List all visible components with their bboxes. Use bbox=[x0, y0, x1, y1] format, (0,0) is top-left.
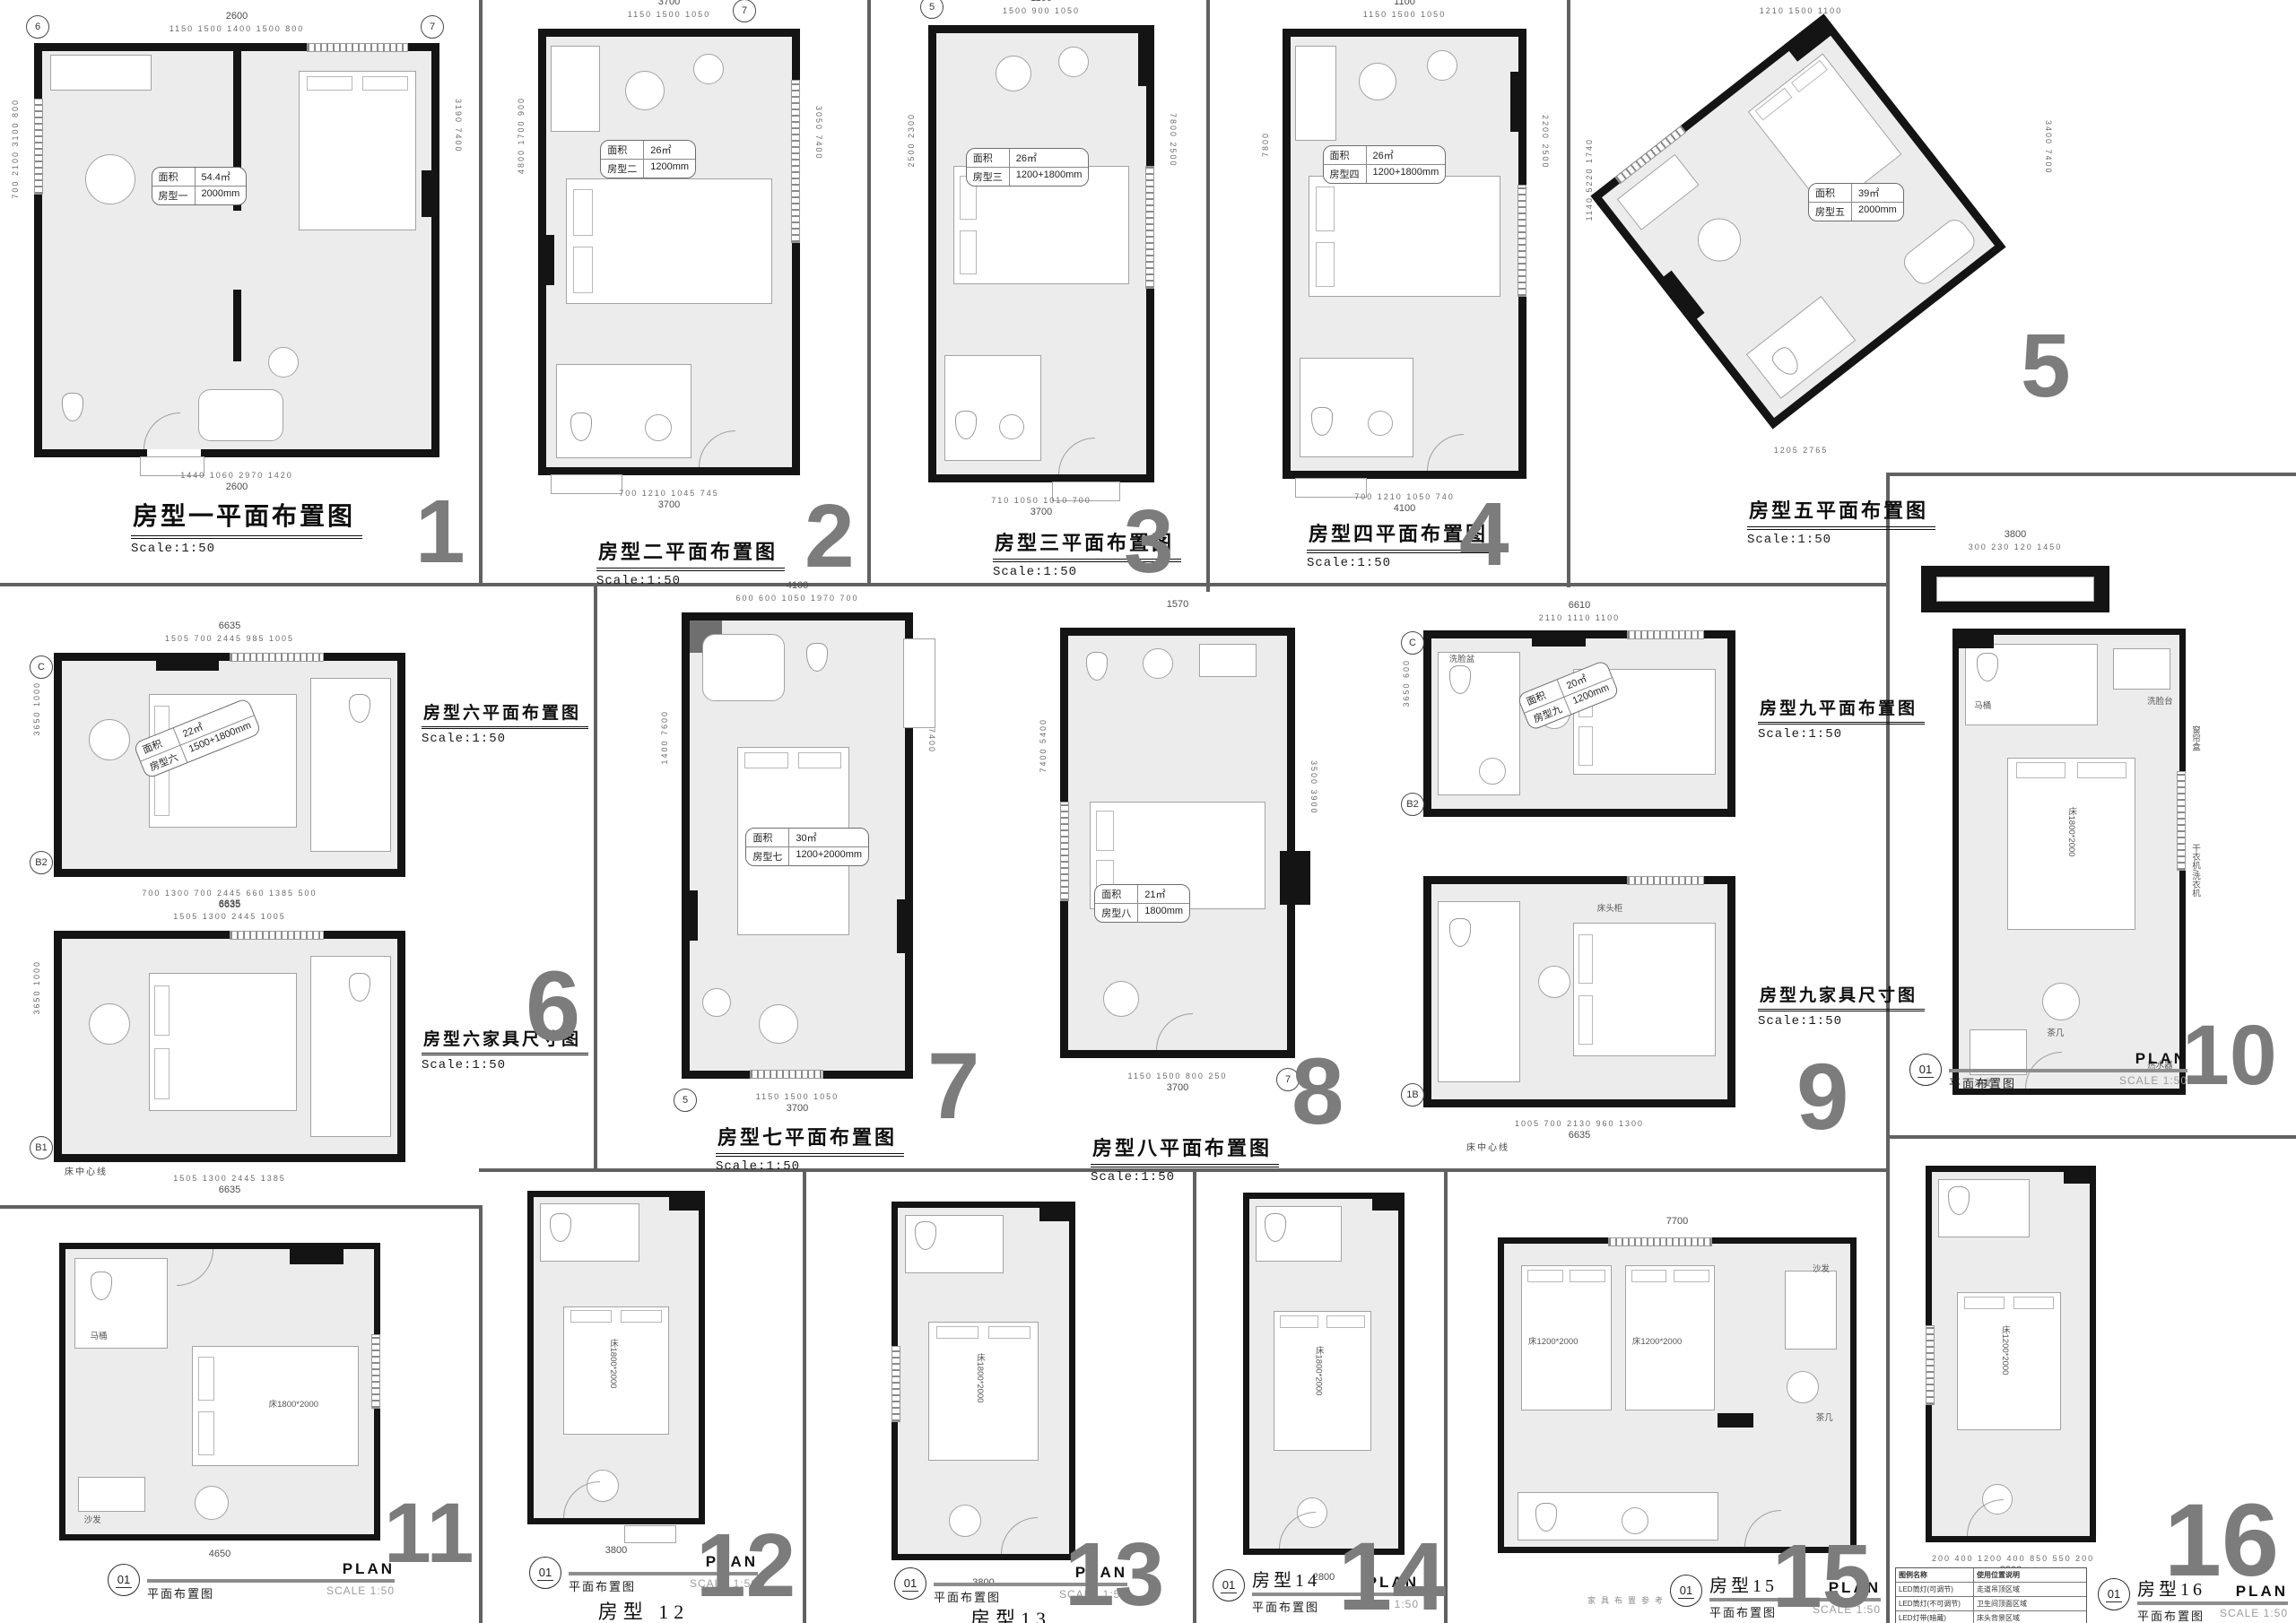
dim-bottom: 1150 1500 10503700 bbox=[690, 1091, 905, 1115]
plan-tile-12: 床1800*2000 3800 01 PLAN 平面布置图SCALE 1:50 … bbox=[483, 1171, 803, 1623]
fixture-label: 茶几 bbox=[1816, 1410, 1833, 1423]
wall-block bbox=[233, 290, 241, 361]
dim-right: 7400 bbox=[926, 728, 937, 753]
bathroom-zone bbox=[1746, 296, 1856, 398]
floor-plan-graphic: 面积54.4㎡ 房型一2000mm 26001150 1500 1400 150… bbox=[34, 43, 439, 457]
dim-left: 7400 5400 bbox=[1038, 718, 1048, 773]
plan-tile-13: 床1800*2000 3800 01 PLAN 平面布置图SCALE 1:50 … bbox=[806, 1171, 1189, 1623]
fixture-label: 沙发 bbox=[84, 1513, 101, 1525]
roomtype-name-label: 房型15 bbox=[1709, 1571, 1778, 1597]
plan-number: 9 bbox=[1796, 1057, 1848, 1137]
plan-tile-15: 床1200*2000 床1200*2000 沙发 茶几 7700 01 房型15… bbox=[1448, 1171, 1886, 1623]
roomtype-label-key: 房型一 bbox=[152, 187, 196, 204]
floor-plan-graphic: 洗脸盆 面积20㎡ 房型九1200mm 66102110 1110 1100 3… bbox=[1423, 630, 1735, 817]
floor-plan-graphic: 床头柜 1005 700 2130 960 13006635 1B bbox=[1423, 876, 1735, 1107]
shower-drain bbox=[645, 414, 672, 441]
door-arc bbox=[177, 1249, 213, 1286]
floor-plan-graphic: 床1800*2000 2800 bbox=[1243, 1193, 1405, 1555]
kitchen-counter bbox=[50, 55, 152, 91]
basin bbox=[1479, 758, 1506, 785]
wall-block bbox=[1138, 33, 1154, 86]
chair bbox=[1427, 50, 1457, 81]
grid-bubble: C bbox=[1401, 631, 1424, 655]
plan-number: 15 bbox=[1772, 1539, 1872, 1615]
window-hatch bbox=[1926, 1325, 1935, 1405]
area-label-value: 54.4㎡ bbox=[196, 168, 247, 187]
plan-number: 5 bbox=[2021, 328, 2071, 404]
dim-top: 11001150 1500 1050 bbox=[1291, 0, 1518, 20]
floor-plan-graphic: 床1200*2000 200 400 1200 400 850 550 2003… bbox=[1926, 1166, 2096, 1542]
window-hatch bbox=[750, 1070, 823, 1079]
plan-tile-11: 马桶 床1800*2000 沙发 4650 01 PLAN 平面布置图SCALE… bbox=[7, 1209, 477, 1621]
grid-bubble: B2 bbox=[1401, 793, 1424, 816]
chair bbox=[1058, 47, 1089, 77]
wall-block bbox=[897, 899, 913, 953]
grid-bubble: 5 bbox=[674, 1089, 697, 1112]
floor-plan-graphic: 面积30㎡ 房型七1200+2000mm 4100600 600 1050 19… bbox=[682, 612, 913, 1079]
area-label: 面积26㎡ 房型三1200+1800mm bbox=[966, 148, 1090, 187]
dim-bottom: 700 1210 1045 7453700 bbox=[546, 488, 792, 512]
toilet bbox=[1265, 1213, 1286, 1242]
floor-plan-graphic: 66351505 1300 2445 1005 1505 1300 2445 1… bbox=[54, 931, 405, 1162]
area-label: 面积26㎡ 房型二1200mm bbox=[600, 140, 696, 178]
window-hatch bbox=[791, 80, 800, 243]
dim-left: 3650 1000 bbox=[31, 960, 42, 1015]
plan-number: 3 bbox=[1124, 504, 1174, 580]
grid-bubble: 1B bbox=[1401, 1083, 1424, 1107]
dim-bottom: 4650 bbox=[65, 1548, 374, 1561]
floor-plan-graphic: 床1200*2000 床1200*2000 沙发 茶几 7700 bbox=[1498, 1237, 1857, 1553]
bathroom-zone bbox=[74, 1258, 167, 1350]
window-hatch bbox=[34, 99, 43, 195]
plan-tile-16: 床1200*2000 200 400 1200 400 850 550 2003… bbox=[1890, 1139, 2296, 1623]
dim-top: 1210 1500 1100 bbox=[1631, 5, 1971, 16]
title-block: 01 PLAN 平面布置图SCALE 1:50 bbox=[108, 1560, 395, 1601]
door-arc bbox=[1001, 1517, 1038, 1554]
plan-number: 7 bbox=[927, 1046, 979, 1126]
legend-table: 图例名称使用位置说明 LED筒灯(可调节)走道吊顶区域 LED筒灯(不可调节)卫… bbox=[1895, 1567, 2087, 1623]
window-hatch bbox=[1145, 166, 1154, 290]
plan-scale-text: Scale:1:50 bbox=[131, 542, 362, 556]
door-arc bbox=[563, 1481, 600, 1518]
bathtub bbox=[1900, 215, 1979, 289]
dim-top: 7700 bbox=[1504, 1215, 1850, 1228]
wall-block bbox=[1952, 629, 1994, 648]
plan-title: 房型九平面布置图 Scale:1:50 bbox=[1758, 695, 1925, 742]
door-arc bbox=[699, 430, 735, 467]
plan-number: 11 bbox=[384, 1497, 474, 1570]
fixture-label: 马桶 bbox=[1974, 699, 1991, 711]
bed bbox=[566, 178, 772, 303]
wall-block bbox=[1784, 13, 1837, 61]
detail-number-bubble: 01 bbox=[894, 1567, 926, 1600]
plan-tile-1: 面积54.4㎡ 房型一2000mm 26001150 1500 1400 150… bbox=[7, 5, 477, 581]
door-arc bbox=[1279, 1512, 1316, 1549]
round-table bbox=[2042, 983, 2080, 1020]
detail-number-bubble: 01 bbox=[2098, 1578, 2130, 1610]
window-hatch bbox=[371, 1334, 380, 1409]
fixture-label: 马桶 bbox=[91, 1329, 108, 1341]
window-hatch bbox=[1518, 185, 1526, 298]
wall-block bbox=[1657, 271, 1705, 325]
floor-plan-graphic: 面积22㎡ 房型六1500+1800mm 66351505 700 2445 9… bbox=[54, 653, 405, 877]
title-rule bbox=[1949, 1069, 2187, 1072]
sofa bbox=[78, 1477, 146, 1511]
floor-plan-graphic: 面积21㎡ 房型八1800mm 1570 1150 1500 800 25037… bbox=[1060, 628, 1295, 1058]
plan-title-text: 房型一平面布置图 bbox=[131, 497, 362, 539]
plan-number: 1 bbox=[415, 494, 465, 570]
wall-block bbox=[1532, 630, 1586, 647]
window-hatch bbox=[230, 653, 324, 662]
grid-bubble: B1 bbox=[30, 1136, 53, 1159]
plan-tile-7: 面积30㎡ 房型七1200+2000mm 4100600 600 1050 19… bbox=[639, 587, 1015, 1170]
plan-number: 2 bbox=[804, 499, 855, 575]
plan-number: 14 bbox=[1338, 1535, 1446, 1618]
floor-plan-graphic bbox=[1590, 13, 2005, 429]
plan-title: 房型七平面布置图 Scale:1:50 bbox=[716, 1122, 904, 1174]
bed-size-label: 床1800*2000 bbox=[2065, 807, 2077, 856]
plan-number: 13 bbox=[1065, 1537, 1164, 1613]
area-label-key: 面积 bbox=[152, 168, 196, 187]
wall-block bbox=[2064, 1166, 2096, 1184]
dim-top: 26001150 1500 1400 1500 800 bbox=[42, 10, 431, 34]
plan-tile-3: 面积26㎡ 房型三1200+1800mm 11001500 900 1050 7… bbox=[883, 5, 1206, 588]
area-label: 面积26㎡ 房型四1200+1800mm bbox=[1323, 145, 1447, 184]
round-table bbox=[996, 56, 1031, 91]
dim-left: 700 2100 3100 800 bbox=[10, 99, 21, 199]
toilet bbox=[1086, 652, 1108, 681]
grid-bubble: C bbox=[30, 655, 53, 679]
basin bbox=[268, 347, 299, 378]
round-table bbox=[1538, 966, 1570, 998]
dim-detail: 3800300 230 120 1450 bbox=[1921, 528, 2109, 552]
bed-size-label: 床1200*2000 bbox=[1528, 1334, 1578, 1347]
window-hatch bbox=[1627, 876, 1704, 885]
detail-inner bbox=[1936, 577, 2094, 602]
plan-title-2: 房型九家具尺寸图 Scale:1:50 bbox=[1758, 982, 1925, 1028]
side-label: 窗帘盒 bbox=[2188, 725, 2201, 751]
bathtub bbox=[702, 634, 784, 701]
plan-title: 房型六平面布置图 Scale:1:50 bbox=[422, 699, 588, 746]
bed bbox=[299, 71, 415, 230]
side-label: 干衣机/洗衣机 bbox=[2188, 844, 2201, 898]
dim-right: 3400 7400 bbox=[2043, 120, 2054, 175]
dim-bottom: 1505 1300 2445 13856635 bbox=[62, 1173, 397, 1197]
floor-plan-graphic: 面积26㎡ 房型四1200+1800mm 11001150 1500 1050 … bbox=[1283, 29, 1526, 479]
dim-left: 1400 7600 bbox=[659, 710, 670, 765]
detail-number-bubble: 01 bbox=[529, 1557, 561, 1589]
basin-counter bbox=[2113, 648, 2170, 690]
fixture-label: 茶几 bbox=[2047, 1026, 2064, 1038]
dim-right: 3190 7400 bbox=[453, 99, 464, 153]
title-rule bbox=[2137, 1601, 2288, 1605]
title-block: 01 PLAN 平面布置图SCALE 1:50 bbox=[1909, 1050, 2187, 1091]
roomtype-label-value: 2000mm bbox=[196, 187, 247, 204]
grid-bubble: 7 bbox=[421, 15, 444, 39]
wall-block bbox=[290, 1243, 344, 1264]
dim-bottom: 1005 700 2130 960 13006635 bbox=[1431, 1118, 1727, 1142]
plan-number: 6 bbox=[526, 965, 580, 1049]
window-hatch bbox=[2177, 771, 2186, 871]
plan-number: 16 bbox=[2164, 1497, 2279, 1585]
closet-box bbox=[903, 638, 935, 728]
plan-title: 房型八平面布置图 Scale:1:50 bbox=[1091, 1133, 1279, 1185]
centerline-note: 床中心线 bbox=[65, 1164, 108, 1177]
drawing-sheet: 面积54.4㎡ 房型一2000mm 26001150 1500 1400 150… bbox=[0, 0, 2296, 1623]
area-label: 面积30㎡ 房型七1200+2000mm bbox=[745, 828, 869, 866]
wall-block bbox=[538, 235, 554, 285]
plan-tile-10: 3800300 230 120 1450 马桶 洗脸台 床1800*2000 茶… bbox=[1890, 476, 2296, 1135]
wardrobe bbox=[1295, 46, 1336, 141]
chair bbox=[693, 54, 724, 84]
bed bbox=[149, 973, 297, 1111]
wall-block bbox=[1039, 1202, 1075, 1221]
grid-bubble: B2 bbox=[30, 851, 53, 874]
bathroom-zone bbox=[944, 355, 1041, 461]
window-hatch bbox=[307, 43, 408, 52]
detail-number-bubble: 01 bbox=[1670, 1575, 1702, 1607]
round-table bbox=[949, 1505, 981, 1537]
wall-block bbox=[682, 890, 698, 941]
dim-bottom: 1205 2765 bbox=[1631, 445, 1971, 456]
floor-plan-graphic: 马桶 床1800*2000 沙发 4650 bbox=[59, 1243, 380, 1541]
round-table bbox=[85, 154, 135, 204]
door-arc bbox=[1427, 434, 1464, 471]
area-label: 面积39㎡ 房型五2000mm bbox=[1808, 183, 1904, 221]
plan-title: 房型五平面布置图 Scale:1:50 bbox=[1747, 495, 1935, 547]
round-table bbox=[1103, 981, 1139, 1017]
door-arc bbox=[1058, 438, 1095, 474]
dim-left: 4800 1700 900 bbox=[516, 97, 526, 174]
bathtub bbox=[198, 389, 283, 441]
round-table bbox=[759, 1004, 798, 1044]
round-table bbox=[1689, 210, 1749, 270]
sofa bbox=[1785, 1271, 1837, 1350]
wall-block bbox=[422, 170, 439, 217]
dim-top: 66351505 700 2445 985 1005 bbox=[62, 620, 397, 644]
wardrobe bbox=[551, 46, 600, 132]
plan-tile-9: 洗脸盆 面积20㎡ 房型九1200mm 66102110 1110 1100 3… bbox=[1413, 587, 1888, 1170]
plan-en-label: PLAN bbox=[2135, 1050, 2187, 1068]
dim-left: 7800 bbox=[1260, 132, 1271, 157]
centerline-note: 床中心线 bbox=[1466, 1140, 1509, 1153]
plan-tile-14: 床1800*2000 2800 01 房型14PLAN 平面布置图SCALE 1… bbox=[1196, 1171, 1440, 1623]
divider bbox=[1206, 0, 1210, 592]
roomtype-name-label: 房型14 bbox=[1252, 1566, 1320, 1592]
window-hatch bbox=[891, 1346, 900, 1422]
dim-left: 2500 2300 bbox=[906, 113, 917, 168]
plan-number: 4 bbox=[1459, 497, 1509, 573]
detail-number-bubble: 01 bbox=[1213, 1569, 1245, 1601]
plan-title: 房型一平面布置图 Scale:1:50 bbox=[131, 497, 362, 556]
round-table bbox=[1787, 1371, 1819, 1403]
bed-size-label: 床1200*2000 bbox=[1632, 1334, 1682, 1347]
chair bbox=[702, 988, 731, 1017]
window-hatch bbox=[1627, 630, 1704, 639]
window-hatch bbox=[1608, 1237, 1712, 1246]
dim-right: 7800 2500 bbox=[1168, 113, 1178, 168]
wall-block bbox=[1280, 851, 1310, 905]
toilet bbox=[806, 643, 828, 672]
plan-tile-6: 面积22㎡ 房型六1500+1800mm 66351505 700 2445 9… bbox=[7, 590, 635, 1171]
dim-bottom: 710 1050 1010 7003700 bbox=[936, 495, 1146, 519]
plan-title: 房型二平面布置图 Scale:1:50 bbox=[596, 536, 785, 588]
fixture-label: 洗脸台 bbox=[2147, 694, 2173, 707]
dim-left: 3650 1000 bbox=[31, 681, 42, 736]
area-label: 面积21㎡ 房型八1800mm bbox=[1094, 884, 1190, 923]
plan-tile-4: 面积26㎡ 房型四1200+1800mm 11001150 1500 1050 … bbox=[1215, 5, 1570, 588]
bed bbox=[1309, 176, 1500, 298]
bed-size-label: 床1800*2000 bbox=[269, 1397, 318, 1410]
fixture-label: 沙发 bbox=[1813, 1262, 1830, 1274]
wall-block bbox=[1510, 72, 1526, 133]
floor-plan-graphic: 面积26㎡ 房型三1200+1800mm 11001500 900 1050 7… bbox=[928, 25, 1154, 482]
entry-box bbox=[624, 1525, 676, 1543]
bed-size-label: 床1800*2000 bbox=[606, 1339, 619, 1388]
fixture-label: 洗脸盆 bbox=[1449, 652, 1475, 664]
floor-plan-graphic: 床1800*2000 3800 bbox=[527, 1191, 705, 1524]
wall-block bbox=[1718, 1413, 1753, 1428]
dim-top: 66351505 1300 2445 1005 bbox=[62, 898, 397, 922]
furniture-caption: 家具布置参考 bbox=[1587, 1594, 1668, 1606]
divider bbox=[867, 0, 871, 586]
window-hatch bbox=[1060, 802, 1069, 901]
dim-top: 1570 bbox=[1068, 598, 1287, 612]
grid-bubble: 6 bbox=[26, 15, 49, 39]
door-arc bbox=[143, 412, 180, 449]
shower-drain bbox=[1143, 648, 1173, 679]
wall-block bbox=[156, 653, 219, 671]
floor-plan-graphic: 床1800*2000 3800 bbox=[891, 1202, 1075, 1560]
round-table bbox=[89, 1003, 130, 1045]
door-arc bbox=[1156, 1013, 1193, 1050]
wall-block bbox=[1372, 1193, 1405, 1211]
dim-top: 11001500 900 1050 bbox=[936, 0, 1146, 16]
fixture-label: 床头柜 bbox=[1597, 901, 1623, 914]
dim-left: 1140 5220 1740 bbox=[1584, 138, 1595, 221]
wall-block bbox=[669, 1191, 705, 1211]
dim-right: 2200 2500 bbox=[1540, 115, 1551, 169]
round-table bbox=[89, 719, 130, 760]
dim-right: 3500 3900 bbox=[1309, 760, 1319, 815]
plan-tile-2: 面积26㎡ 房型二1200mm 37001150 1500 1050 700 1… bbox=[489, 5, 865, 586]
round-table bbox=[1359, 63, 1396, 100]
floor-plan-graphic: 面积26㎡ 房型二1200mm 37001150 1500 1050 700 1… bbox=[538, 29, 800, 475]
title-rule bbox=[147, 1579, 395, 1583]
dim-top: 66102110 1110 1100 bbox=[1431, 599, 1727, 623]
basin-counter bbox=[1199, 644, 1256, 677]
bed-size-label: 床1200*2000 bbox=[1998, 1325, 2011, 1375]
detail-number-bubble: 01 bbox=[108, 1564, 140, 1596]
dim-bottom: 1440 1060 2970 14202600 bbox=[42, 470, 431, 494]
bed-size-label: 床1800*2000 bbox=[973, 1353, 986, 1402]
round-table bbox=[625, 71, 665, 110]
dim-left: 3650 600 bbox=[1401, 659, 1412, 707]
bed-size-label: 床1800*2000 bbox=[1312, 1346, 1325, 1395]
window-hatch bbox=[230, 931, 324, 940]
round-table bbox=[195, 1486, 229, 1520]
plan-tile-8: 面积21㎡ 房型八1800mm 1570 1150 1500 800 25037… bbox=[1015, 587, 1410, 1170]
grid-bubble: 7 bbox=[733, 0, 756, 22]
shower-drain bbox=[999, 414, 1024, 439]
plan-number: 8 bbox=[1291, 1052, 1344, 1132]
bed bbox=[1573, 923, 1715, 1056]
area-label: 面积54.4㎡ 房型一2000mm bbox=[152, 167, 248, 205]
divider bbox=[479, 0, 483, 586]
door-arc bbox=[1967, 1499, 2004, 1536]
detail-number-bubble: 01 bbox=[1909, 1054, 1942, 1086]
dim-right: 3050 7400 bbox=[813, 106, 824, 161]
plan-number: 10 bbox=[2182, 1020, 2277, 1092]
floor-plan-graphic: 马桶 洗脸台 床1800*2000 茶几 沙发 热水器 窗帘盒 干衣机/洗衣机 bbox=[1952, 629, 2186, 1095]
plan-number: 12 bbox=[696, 1528, 796, 1604]
bathroom-zone bbox=[556, 364, 691, 459]
toilet bbox=[62, 393, 83, 421]
dim-bottom: 1150 1500 800 2503700 bbox=[1068, 1071, 1287, 1095]
